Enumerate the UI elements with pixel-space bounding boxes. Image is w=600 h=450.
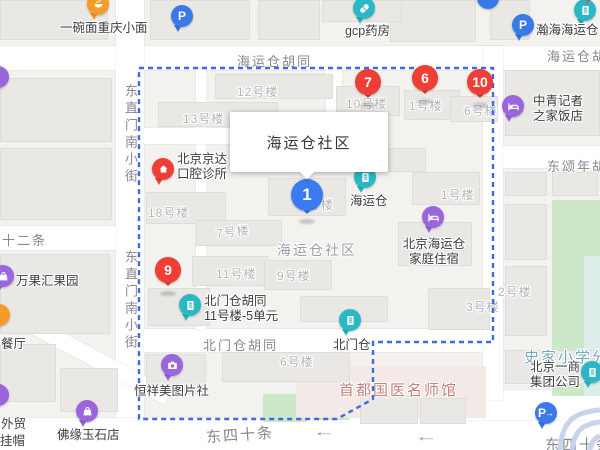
- poi-label[interactable]: 北门仓: [333, 338, 371, 353]
- map-canvas[interactable]: 海运仓社区 海运仓胡同海运仓胡同东直门南小街东直门南小街十二条北门仓胡同东四十条…: [0, 0, 600, 450]
- poi-label[interactable]: 万果汇果园: [16, 274, 79, 289]
- building: [360, 396, 418, 424]
- building-label: 18号楼: [148, 204, 189, 221]
- building: [505, 172, 547, 196]
- place-marker-beimencang[interactable]: [339, 309, 361, 331]
- info-window-tail: [300, 165, 314, 179]
- road-arrow: ←: [313, 424, 336, 439]
- building-label: 11号楼: [216, 265, 256, 282]
- result-marker-10[interactable]: 10: [467, 69, 493, 95]
- street-label: 东直门南小街: [121, 250, 140, 352]
- company-marker[interactable]: [581, 361, 600, 383]
- info-window-title: 海运仓社区: [266, 132, 351, 153]
- poi-label[interactable]: 北京海运仓家庭住宿: [399, 237, 469, 267]
- building: [0, 78, 112, 142]
- building: [150, 0, 250, 40]
- result-marker-7[interactable]: 7: [355, 69, 381, 95]
- parking-marker[interactable]: P: [171, 5, 193, 27]
- street-label: 海运仓胡同: [237, 51, 312, 70]
- building-label: 9号楼: [277, 267, 311, 284]
- poi-label[interactable]: 餐厅: [1, 337, 26, 352]
- road-arrow: ←: [415, 429, 438, 444]
- building: [420, 398, 466, 424]
- building: [505, 266, 547, 336]
- street-label: 海运仓胡同: [547, 46, 600, 65]
- poi-label[interactable]: 瀚海海运仓: [536, 23, 599, 38]
- result-marker-9[interactable]: 9: [155, 257, 181, 283]
- building: [505, 204, 547, 260]
- road: [144, 329, 500, 352]
- building: [258, 0, 320, 40]
- building: [0, 254, 110, 334]
- info-window[interactable]: 海运仓社区: [230, 112, 388, 172]
- result-marker-1[interactable]: 1: [291, 179, 323, 211]
- poi-label[interactable]: 北门仓胡同11号楼-5单元: [204, 294, 278, 324]
- poi-label[interactable]: 一碗面重庆小面: [60, 21, 148, 36]
- building: [552, 172, 598, 196]
- poi-label[interactable]: 北京一商集团公司: [530, 360, 580, 390]
- shop-marker[interactable]: [76, 400, 98, 422]
- poi-label[interactable]: 海运仓: [350, 194, 388, 209]
- photo-studio-marker[interactable]: [161, 354, 183, 376]
- building-label: 1号楼: [441, 186, 475, 203]
- street-label: 东直门南小街: [121, 84, 140, 186]
- street-label: 北门仓胡同: [203, 335, 278, 354]
- clinic-marker[interactable]: [152, 158, 174, 180]
- poi-label[interactable]: 佛缘玉石店: [57, 428, 120, 443]
- result-marker-6[interactable]: 6: [412, 65, 438, 91]
- street-label: 东颂年胡同: [547, 156, 600, 175]
- poi-label[interactable]: gcp药房: [345, 24, 390, 39]
- street-label: 十二条: [2, 230, 47, 249]
- area-label: 海运仓社区: [277, 240, 357, 260]
- area-label: 首都国医名师馆: [339, 379, 458, 400]
- building: [390, 0, 476, 42]
- building-label: 13号楼: [183, 110, 224, 127]
- street-label: 东四十条: [545, 434, 600, 450]
- poi-label[interactable]: 北京京达口腔诊所: [177, 152, 227, 182]
- building: [0, 148, 112, 220]
- poi-label[interactable]: 中青记者之家饭店: [533, 94, 583, 124]
- poi-label[interactable]: 恒祥美图片社: [134, 384, 209, 399]
- building-label: 3号楼: [466, 298, 500, 315]
- parking-marker[interactable]: P: [512, 14, 534, 36]
- poi-label[interactable]: 外贸: [1, 417, 26, 432]
- place-marker-unit[interactable]: [179, 294, 201, 316]
- building-label: 6号楼: [280, 353, 314, 370]
- poi-label[interactable]: 挂帽: [0, 434, 25, 449]
- building-label: 12号楼: [237, 83, 278, 100]
- building-label: 7号楼: [215, 221, 250, 241]
- hotel-marker[interactable]: [502, 95, 524, 117]
- lodging-marker[interactable]: [422, 206, 444, 228]
- parking-entrance-marker[interactable]: P→: [535, 402, 557, 424]
- building-label: 2号楼: [498, 283, 532, 300]
- scenic-marker[interactable]: [574, 0, 596, 21]
